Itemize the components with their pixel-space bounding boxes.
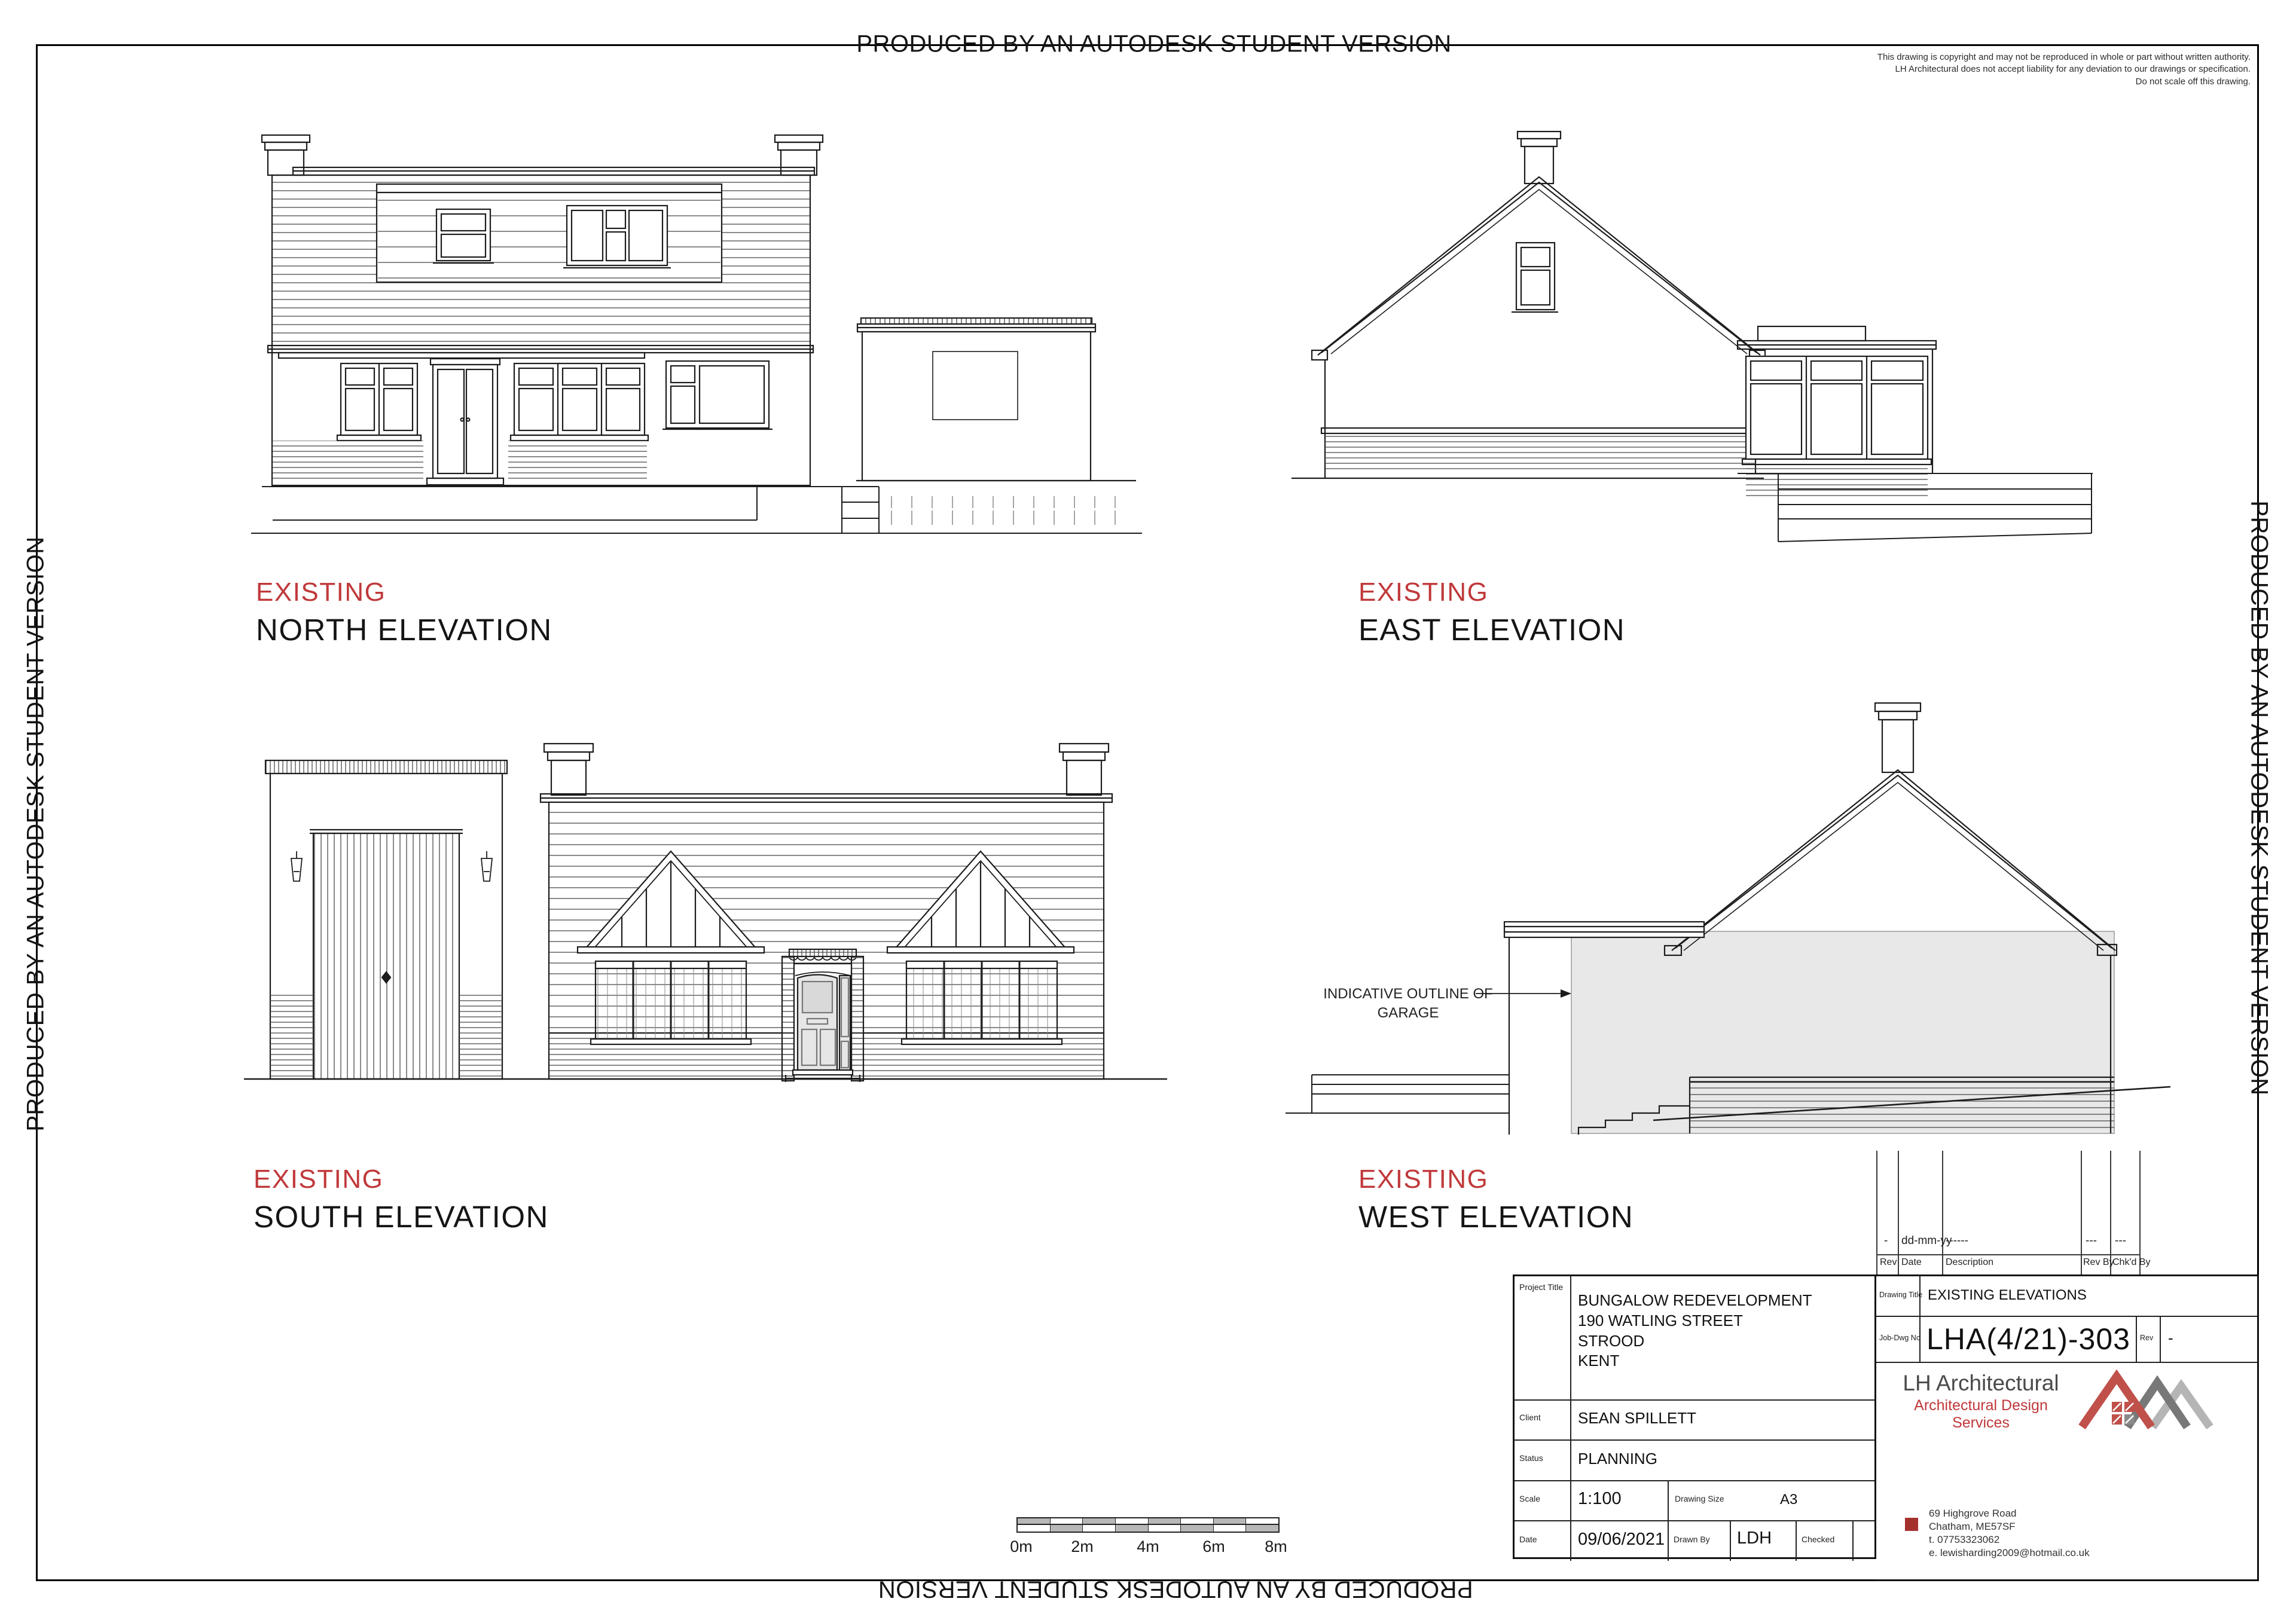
disclaimer-line: Do not scale off this drawing. <box>1877 76 2251 88</box>
label-north-elevation: EXISTING NORTH ELEVATION <box>256 577 552 647</box>
disclaimer-line: LH Architectural does not accept liabili… <box>1877 63 2251 75</box>
ground-window-left <box>337 363 421 441</box>
chimney <box>1518 132 1561 184</box>
leader-arrow <box>1561 989 1571 998</box>
status-value: PLANNING <box>1578 1450 1657 1468</box>
drawing-size-value: A3 <box>1780 1491 1797 1508</box>
chimney-right <box>1060 744 1109 795</box>
flat-roof-coping <box>1504 922 1704 937</box>
scale-bar: 0m 2m 4m 6m 8m <box>1016 1517 1280 1533</box>
scale-bar-row <box>1016 1525 1280 1533</box>
watermark-left: PRODUCED BY AN AUTODESK STUDENT VERSION <box>23 536 50 1131</box>
rev-header-description: Description <box>1946 1257 1993 1268</box>
status-label: Status <box>1519 1453 1543 1463</box>
rev-value: - <box>2168 1329 2173 1347</box>
firm-name: LH Architectural <box>1885 1371 2077 1396</box>
gable-roof <box>1665 770 2117 955</box>
upper-window-1 <box>433 209 494 263</box>
date-value: 09/06/2021 <box>1578 1530 1665 1549</box>
title-block-left: Project Title BUNGALOW REDEVELOPMENT 190… <box>1513 1274 1876 1559</box>
flat-roof-extension <box>856 318 1136 525</box>
scale-label: 8m <box>1265 1538 1287 1556</box>
drawn-by-value: LDH <box>1737 1529 1772 1548</box>
title-block-right: Drawing Title EXISTING ELEVATIONS Job-Dw… <box>1876 1274 2259 1581</box>
rev-header-chkdby: Chk'd By <box>2112 1257 2151 1268</box>
ground-window-right <box>662 361 773 429</box>
garage-outline-annotation: INDICATIVE OUTLINE OF GARAGE <box>1323 986 1571 1021</box>
rev-row-revby: --- <box>2086 1234 2097 1248</box>
elevation-title: SOUTH ELEVATION <box>254 1200 549 1235</box>
disclaimer-line: This drawing is copyright and may not be… <box>1877 51 2251 63</box>
date-label: Date <box>1519 1535 1537 1544</box>
label-east-elevation: EXISTING EAST ELEVATION <box>1358 577 1625 647</box>
chimney-right <box>775 135 823 175</box>
scale-value: 1:100 <box>1578 1489 1622 1509</box>
elevation-title: EAST ELEVATION <box>1358 613 1625 648</box>
garage <box>265 760 507 1079</box>
firm-logo-icon <box>2075 1365 2218 1432</box>
client-value: SEAN SPILLETT <box>1578 1409 1696 1428</box>
architectural-drawing-sheet: { "watermark": {"text": "PRODUCED BY AN … <box>0 0 2296 1623</box>
annotation-text: INDICATIVE OUTLINE OF <box>1323 986 1493 1002</box>
drawing-title-label: Drawing Title <box>1879 1291 1922 1299</box>
bay-window-left <box>591 961 751 1044</box>
low-wall <box>1286 1075 1509 1113</box>
elevation-status: EXISTING <box>254 1164 549 1195</box>
garage-door <box>313 833 459 1079</box>
entrance-door <box>427 359 503 485</box>
flat-roof-bay <box>1738 326 1936 499</box>
chimney-left <box>544 744 593 795</box>
watermark-top: PRODUCED BY AN AUTODESK STUDENT VERSION <box>856 31 1451 58</box>
scale-label: 6m <box>1202 1538 1225 1556</box>
scale-label: 4m <box>1137 1538 1159 1556</box>
project-title: BUNGALOW REDEVELOPMENT 190 WATLING STREE… <box>1578 1291 1812 1371</box>
scale-label: Scale <box>1519 1494 1540 1503</box>
logo-window <box>2112 1402 2135 1425</box>
rev-header-date: Date <box>1901 1257 1922 1268</box>
firm-address: 69 Highgrove Road Chatham, ME57SF t. 077… <box>1929 1507 2090 1560</box>
west-elevation-drawing: INDICATIVE OUTLINE OF GARAGE <box>1286 687 2182 1154</box>
upper-window-2 <box>563 206 671 268</box>
scale-label: 0m <box>1010 1538 1033 1556</box>
firm-tagline: Architectural Design Services <box>1885 1397 2077 1432</box>
east-elevation-drawing <box>1286 120 2152 550</box>
copyright-disclaimer: This drawing is copyright and may not be… <box>1877 51 2251 88</box>
label-west-elevation: EXISTING WEST ELEVATION <box>1358 1164 1634 1234</box>
drawing-size-label: Drawing Size <box>1675 1494 1724 1503</box>
rev-header-revby: Rev By <box>2083 1257 2114 1268</box>
rev-header-rev: Rev <box>1880 1257 1897 1268</box>
drawing-title-value: EXISTING ELEVATIONS <box>1928 1287 2087 1304</box>
south-elevation-drawing <box>239 705 1172 1136</box>
plinth-bands <box>1690 1077 2114 1133</box>
watermark-right: PRODUCED BY AN AUTODESK STUDENT VERSION <box>2246 500 2273 1095</box>
drawn-by-label: Drawn By <box>1674 1535 1710 1544</box>
elevation-status: EXISTING <box>256 577 552 608</box>
elevation-title: NORTH ELEVATION <box>256 613 552 648</box>
project-title-label: Project Title <box>1519 1282 1563 1292</box>
front-door <box>782 949 863 1082</box>
watermark-bottom: PRODUCED BY AN AUTODESK STUDENT VERSION <box>878 1576 1473 1603</box>
scale-bar-row <box>1016 1517 1280 1525</box>
rev-row-chkdby: --- <box>2115 1234 2126 1248</box>
firm-identity: LH Architectural Architectural Design Se… <box>1885 1371 2077 1432</box>
ground-window-mid <box>511 363 648 441</box>
elevation-title: WEST ELEVATION <box>1358 1200 1634 1235</box>
annotation-text: GARAGE <box>1378 1005 1439 1021</box>
revision-table: - dd-mm-yy ------ --- --- Rev Date Descr… <box>1876 1151 2141 1274</box>
bay-window-right <box>902 961 1062 1044</box>
firm-address-bullet <box>1905 1518 1918 1531</box>
gable-window <box>1512 243 1558 312</box>
north-elevation-drawing <box>251 108 1148 562</box>
rev-label: Rev <box>2140 1334 2153 1342</box>
chimney <box>1875 703 1921 772</box>
chimney-left <box>262 135 310 175</box>
elevation-status: EXISTING <box>1358 1164 1634 1195</box>
job-dwg-no-label: Job-Dwg No <box>1879 1334 1921 1342</box>
rev-row-description: ------ <box>1946 1234 1968 1248</box>
client-label: Client <box>1519 1413 1541 1422</box>
checked-label: Checked <box>1802 1535 1834 1544</box>
scale-label: 2m <box>1071 1538 1094 1556</box>
rev-row-rev: - <box>1884 1234 1888 1248</box>
elevation-status: EXISTING <box>1358 577 1625 608</box>
rev-row-date: dd-mm-yy <box>1901 1234 1952 1248</box>
label-south-elevation: EXISTING SOUTH ELEVATION <box>254 1164 549 1234</box>
job-dwg-no-value: LHA(4/21)-303 <box>1926 1322 2130 1356</box>
